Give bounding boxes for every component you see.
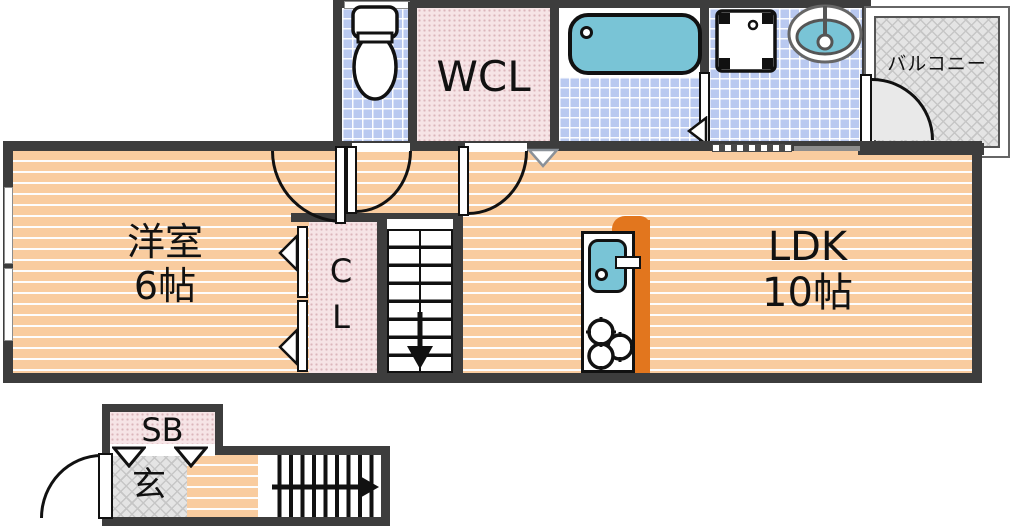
cl-right-wall (377, 213, 387, 375)
front-door-leaf (98, 453, 113, 519)
stairs2f-opening (387, 219, 453, 229)
stairs1f-right-arrow-icon (272, 474, 380, 500)
sb-cabinet: SB (110, 412, 215, 448)
sb-door-triangle-left-icon (112, 446, 146, 468)
ldk-size: 10帖 (762, 270, 853, 316)
youshitsu-window-upper (4, 187, 13, 264)
floorplan-canvas: WCL (0, 0, 1017, 531)
youshitsu-room-label: 洋室 6帖 (85, 210, 245, 320)
washroom-sliding-door (712, 144, 792, 152)
wall-under-balcony (858, 143, 984, 155)
youshitsu-door-leaf (335, 146, 346, 224)
genkan-label: 玄 (132, 466, 166, 505)
washroom-counter-strip (794, 146, 860, 151)
ldk-room-label: LDK 10帖 (725, 215, 890, 325)
cl-door-triangle-upper-icon (277, 234, 299, 272)
youshitsu-name: 洋室 (127, 221, 203, 265)
cl-letter-c: C (330, 248, 352, 294)
front-door-arc (40, 454, 102, 518)
threshold-triangle-icon (527, 148, 559, 168)
bathtub-drain-icon (580, 26, 593, 39)
wcl-label: WCL (436, 53, 530, 101)
sb-label: SB (141, 412, 183, 449)
stairs2f-right-wall (453, 213, 463, 375)
youshitsu-size: 6帖 (134, 265, 196, 309)
sb-door-triangle-right-icon (174, 446, 208, 468)
cl-door-triangle-lower-icon (277, 328, 299, 366)
ldk-name: LDK (768, 224, 847, 270)
wall-wcl-bath (550, 2, 559, 146)
cl-letter-l: L (332, 294, 350, 340)
kitchen-faucet-icon (615, 256, 641, 269)
kitchen-sink-drain-icon (595, 268, 608, 281)
bathtub-icon (568, 13, 702, 75)
cl-label: C L (318, 244, 364, 344)
toilet-door-leaf (346, 146, 357, 214)
stove-burners-icon (584, 316, 636, 372)
vanity-sink-icon (786, 4, 864, 66)
wcl-door-leaf (458, 146, 469, 216)
bathroom-floor-tile (559, 77, 700, 146)
balcony-door-leaf (860, 74, 872, 144)
balcony-label: バルコニー (887, 54, 987, 76)
youshitsu-window-lower (4, 268, 13, 341)
wcl-room: WCL (417, 8, 550, 146)
toilet-icon (350, 5, 400, 101)
stairs2f-down-arrow-icon (405, 312, 435, 370)
washer-pan-icon (715, 9, 777, 73)
stairs1f-gap (258, 455, 270, 517)
wall-toilet-wcl (408, 2, 417, 146)
